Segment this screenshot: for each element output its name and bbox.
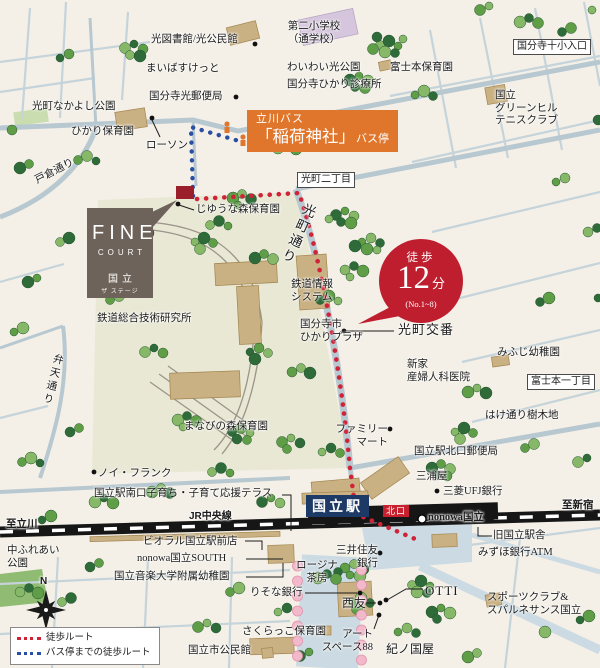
bus-stop-walk-route [191, 127, 239, 196]
district-label-hikaricho2: 光町二丁目 [297, 172, 355, 188]
badge-note: (No.1~8) [379, 299, 463, 309]
poi-label-hake-dori: はけ通り樹木地 [485, 410, 559, 423]
bus-stop-name: 「稲荷神社」 [256, 127, 355, 148]
poi-label-kouminkan: 国立市公民館 [188, 645, 251, 658]
bus-walk-route-label: バス停までの徒歩ルート [46, 646, 151, 661]
poi-label-greenhill-tennis: 国立 グリーンヒル テニスクラブ [495, 90, 558, 128]
poi-label-rojina: ロージナ 茶房 [293, 560, 341, 585]
badge-minutes: 12 [397, 260, 430, 296]
road-label-jr-chuo: JR中央線 [189, 511, 232, 523]
north-gate-box: 北口 [383, 505, 409, 517]
station-label-nonowa: nonowa国立 [428, 512, 484, 525]
poi-label-sports-club: スポーツクラブ& スパルネサンス国立 [487, 592, 581, 617]
poi-label-resona: りそな銀行 [250, 587, 303, 600]
jr-railway [0, 502, 600, 532]
walk-route-label: 徒歩ルート [46, 631, 94, 646]
poi-label-hikari-plaza: 国分寺市 ひかりプラザ [300, 319, 363, 344]
walk-route-sample [17, 637, 41, 640]
route-legend: 徒歩ルート バス停までの徒歩ルート [10, 627, 160, 665]
property-brand-box: FINE COURT 国立 ザ ステージ [87, 208, 153, 298]
walk-time-badge: 徒歩 12分 (No.1~8) [379, 239, 463, 323]
poi-label-ufj: 三菱UFJ銀行 [443, 486, 503, 499]
property-site-marker [176, 186, 194, 199]
poi-label-otti: OTTI [425, 583, 459, 599]
poi-label-terrace: 国立駅南口子育ち・子育て応援テラス [94, 488, 272, 501]
poi-label-mizuho-atm: みずほ銀行ATM [478, 547, 553, 560]
poi-label-nakayoshi-park: 光町なかよし公園 [32, 101, 115, 114]
poi-label-lawson: ローソン [146, 140, 188, 153]
poi-label-daini-shogakko: 第二小学校 （通学校） [278, 21, 350, 46]
brand-main: FINE [92, 222, 153, 245]
poi-label-hikari-hoikuen: ひかり保育園 [71, 126, 134, 139]
poi-label-noi-frank: ノイ・フランク [98, 468, 172, 481]
area-route-map: 光図書館/光公民館 第二小学校 （通学校） 国分寺十小入口 まいばすけっと わい… [0, 0, 600, 668]
poi-label-kyu-ekisha: 旧国立駅舎 [493, 530, 546, 543]
district-label-kokubunji10: 国分寺十小入口 [513, 39, 591, 55]
station-name-box: 国立駅 [306, 495, 369, 517]
poi-label-fujimoto-hoikuen: 富士本保育園 [390, 62, 453, 75]
nonowa-entrance-marker [418, 515, 426, 523]
poi-label-bioral: ビオラル国立駅前店 [143, 536, 238, 549]
bus-walk-route-sample [17, 652, 41, 655]
poi-label-manabi-mori: まなびの森保育園 [184, 421, 268, 434]
poi-label-sakurakko: さくらっこ保育園 [242, 626, 326, 639]
poi-label-hikari-clinic: 国分寺ひかり診療所 [287, 79, 382, 92]
poi-label-kinokuniya: 紀ノ国屋 [386, 642, 434, 656]
brand-sub: COURT [91, 248, 153, 257]
poi-label-jiyuna-mori: じゆうな森保育園 [196, 204, 280, 217]
poi-label-maibasket: まいばすけっと [146, 63, 220, 76]
brand-name: 国立 [91, 270, 153, 285]
poi-label-araya-clinic: 新家 産婦人科医院 [407, 359, 470, 384]
bus-stop-callout: 立川バス 「稲荷神社」バス停 [247, 110, 398, 152]
poi-label-fureai-park: 中ふれあい 公園 [7, 545, 60, 570]
brand-name-sub: ザ ステージ [87, 286, 153, 295]
bus-stop-type: バス停 [356, 133, 389, 147]
poi-label-koban: 光町交番 [398, 322, 454, 338]
bus-line-label: 立川バス [256, 113, 389, 127]
poi-label-seiyu: 西友 [342, 596, 366, 610]
poi-label-kitaguchi-post: 国立駅北口郵便局 [414, 446, 498, 459]
bus-stop-figures [224, 121, 245, 146]
poi-label-mifuji: みふじ幼稚園 [497, 347, 560, 360]
poi-label-hikari-library: 光図書館/光公民館 [151, 34, 238, 47]
poi-label-tetsudo-joho: 鉄道情報 システム [291, 279, 333, 304]
badge-unit: 分 [432, 276, 445, 291]
poi-label-waiwai-park: わいわい光公園 [287, 62, 361, 75]
compass-north-label: N [40, 576, 47, 588]
direction-label-tachikawa: 至立川 [6, 519, 38, 532]
poi-label-hikari-post: 国分寺光郵便局 [149, 91, 223, 104]
poi-label-ongaku-yochien: 国立音楽大学附属幼稚園 [114, 571, 230, 584]
poi-label-nonowa-south: nonowa国立SOUTH [137, 553, 226, 566]
direction-label-shinjuku: 至新宿 [562, 500, 594, 513]
poi-label-familymart: ファミリー マート [332, 424, 388, 449]
poi-label-tetsudo-research: 鉄道総合技術研究所 [97, 313, 192, 326]
poi-label-miuraya: 三浦屋 [416, 471, 448, 484]
district-label-fujimoto1: 富士本一丁目 [527, 374, 595, 390]
